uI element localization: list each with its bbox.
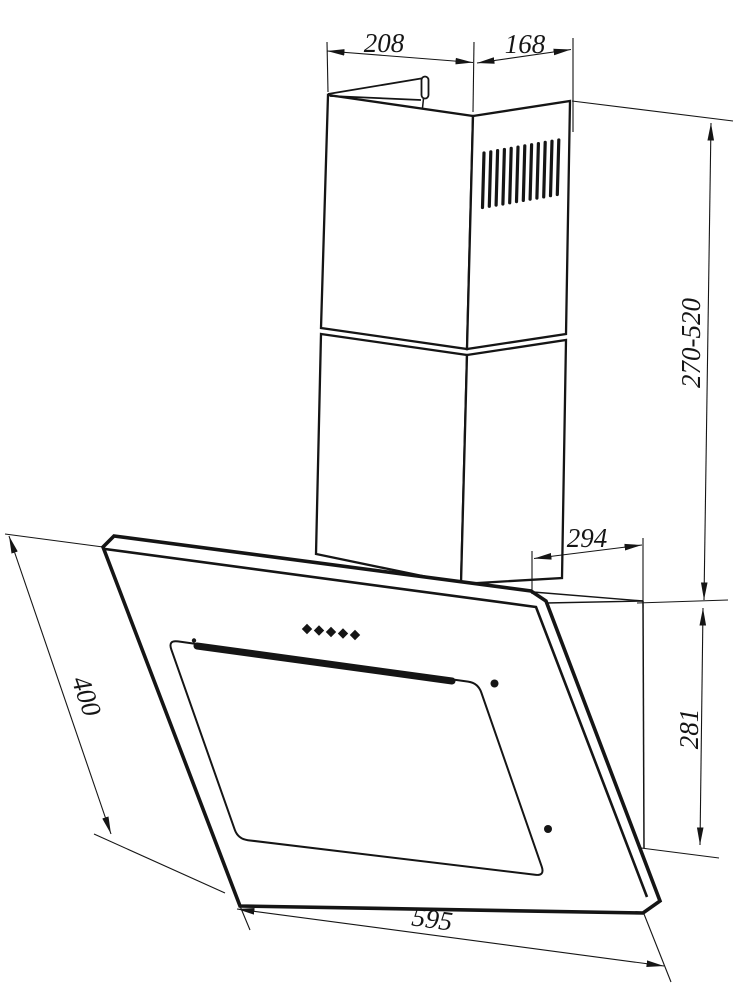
dim-label-chimney-height-range: 270-520 [676, 298, 706, 388]
hook-icon [422, 77, 429, 99]
dim-label-hood-back-height: 281 [674, 709, 704, 750]
dim-label-chimney-depth: 168 [505, 29, 546, 59]
chimney-lower-left-face [316, 334, 467, 584]
chimney-lower-right-face [461, 340, 566, 584]
dim-label-hood-width: 595 [410, 901, 454, 936]
dim-label-chimney-width: 208 [364, 28, 405, 58]
hood-body [103, 536, 660, 913]
screw-dot-upper [491, 680, 499, 688]
chimney-upper-right-face [467, 101, 570, 349]
chimney-upper-left-face [321, 95, 473, 349]
bracket-top-edge [328, 78, 424, 94]
dim-label-hood-top-depth: 294 [567, 523, 608, 553]
dim-label-glass-length: 400 [66, 672, 108, 721]
glass-edge-notch [192, 638, 196, 642]
technical-drawing-canvas: 208 168 270-520 294 281 400 595 [0, 0, 750, 1000]
hood-back-right-edge [643, 601, 644, 848]
hook-tail [423, 99, 424, 109]
cooker-hood-dimension-drawing: 208 168 270-520 294 281 400 595 [0, 0, 750, 1000]
screw-dot-lower [544, 825, 552, 833]
hood-top-right-edge [546, 601, 643, 603]
chimney [316, 77, 570, 585]
